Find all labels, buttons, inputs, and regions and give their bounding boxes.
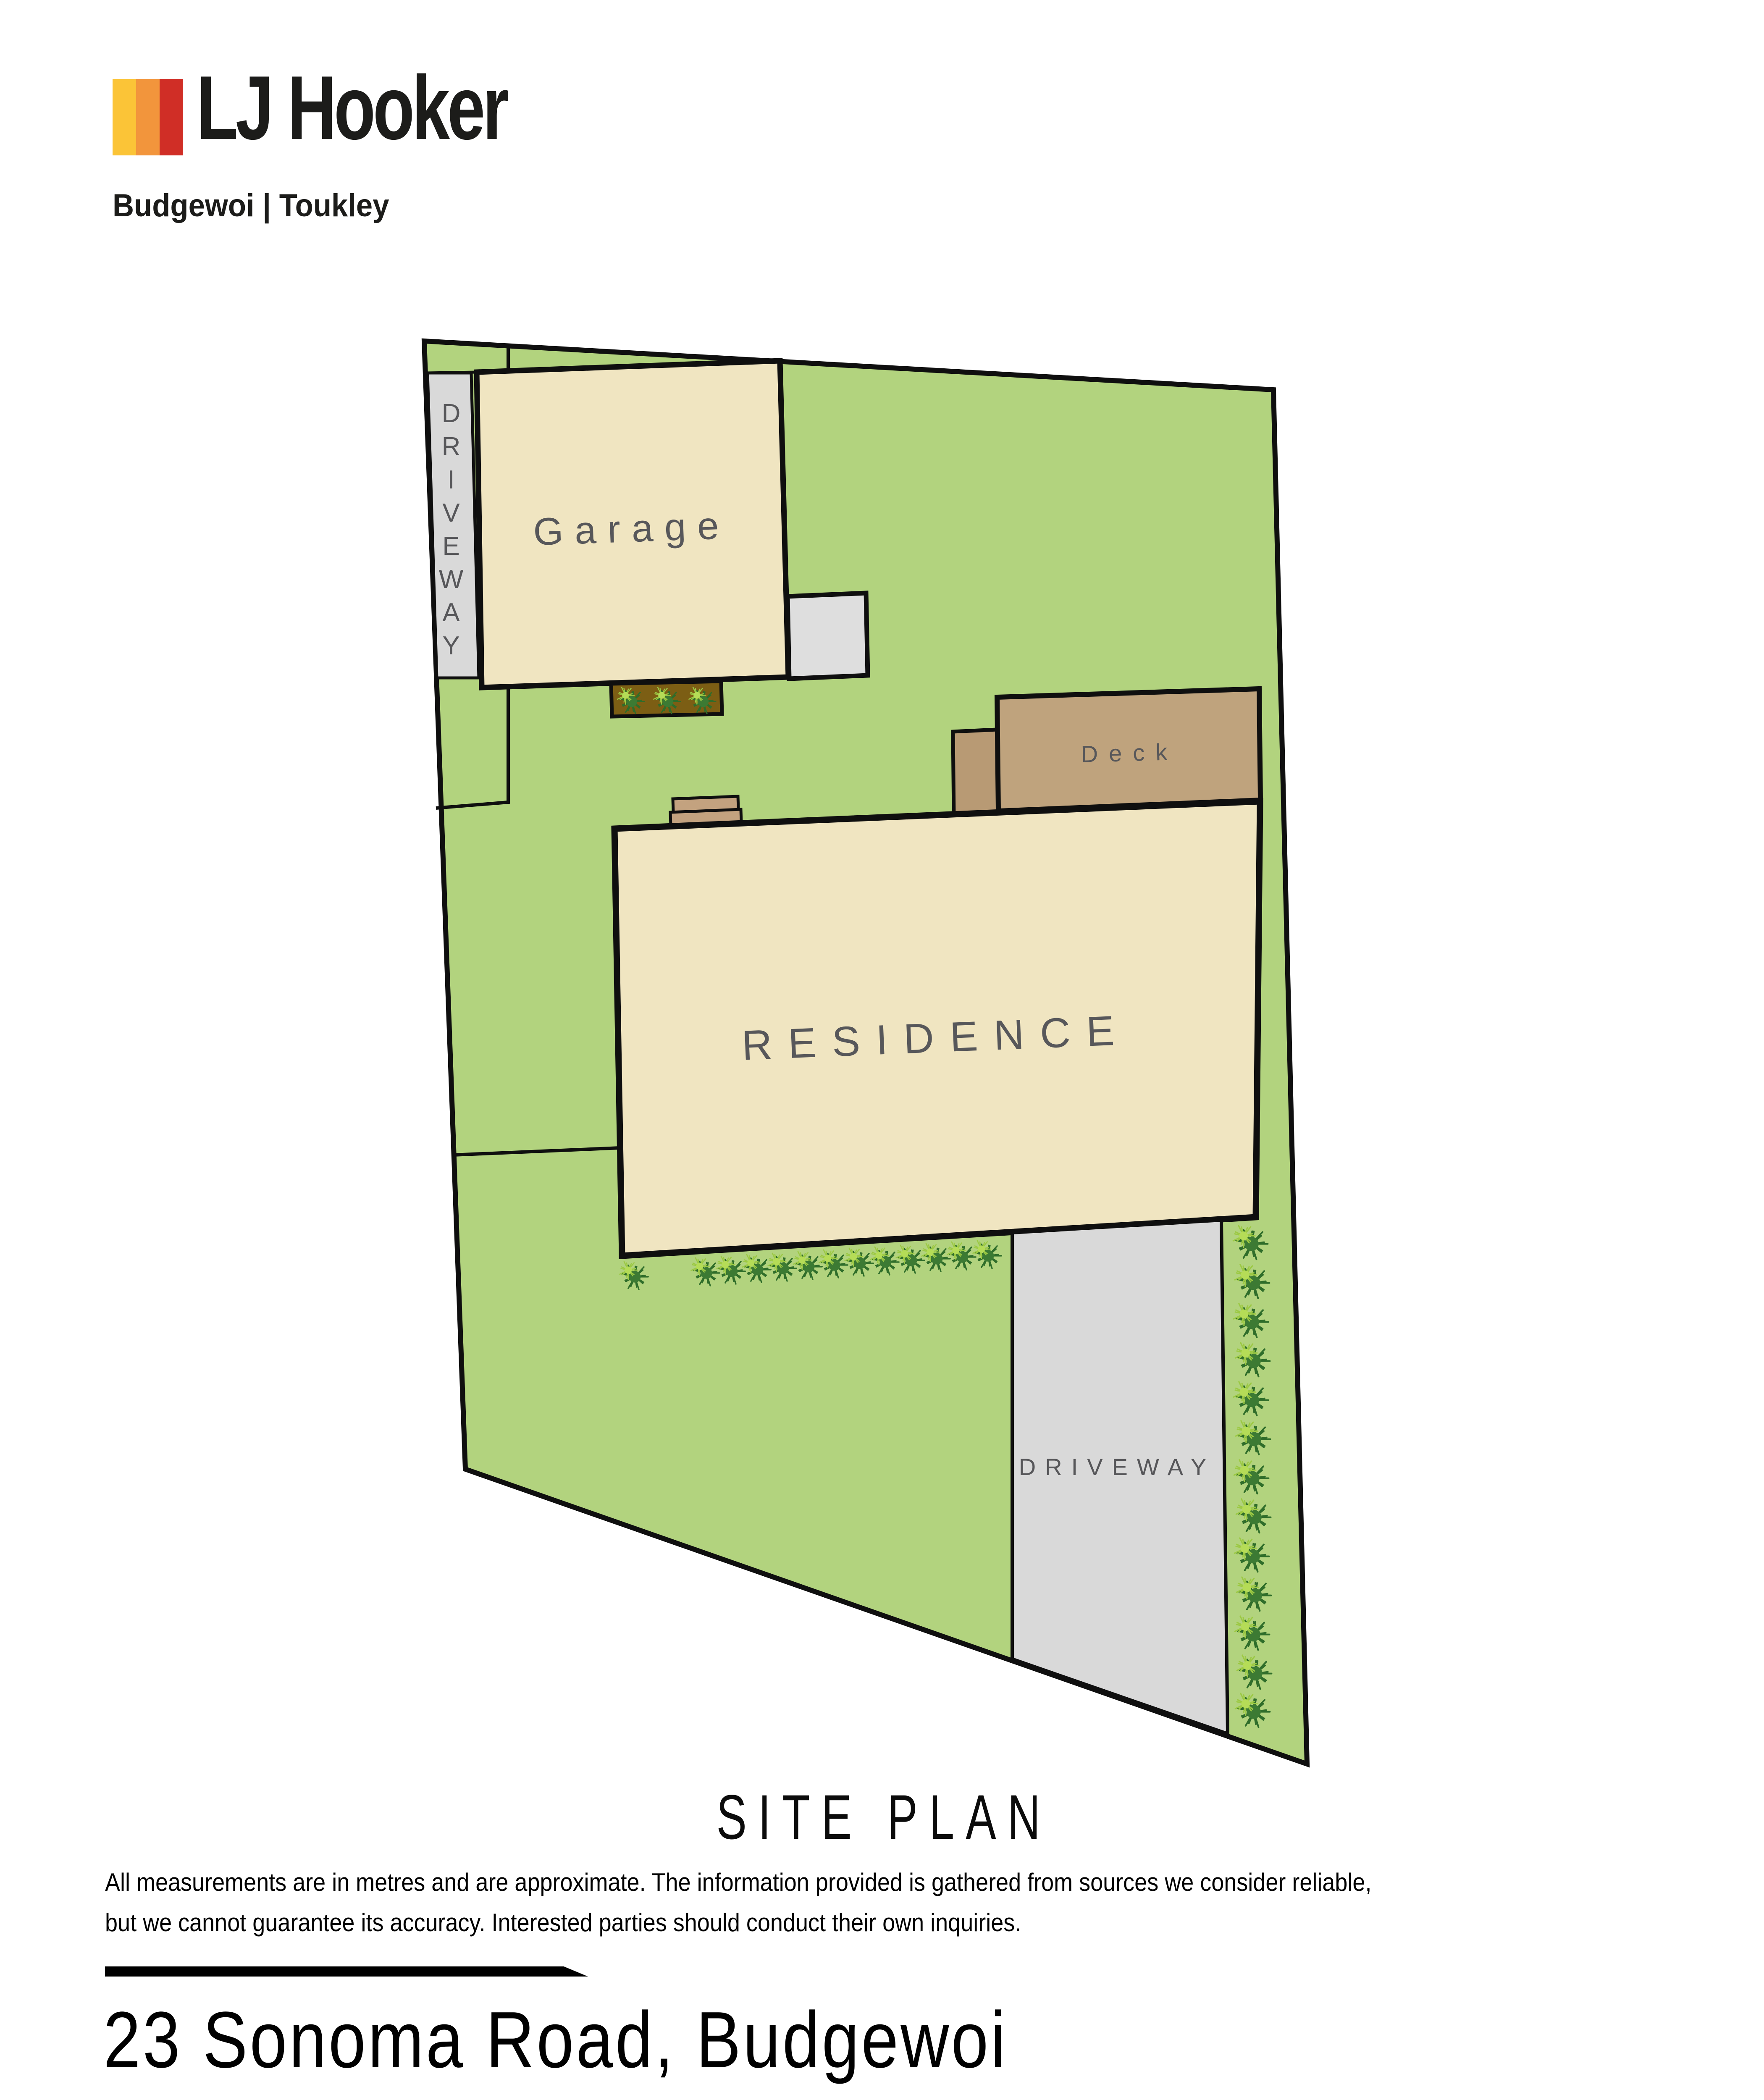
property-address: 23 Sonoma Road, Budgewoi: [103, 2000, 1008, 2080]
site-plan-title: SITE PLAN: [717, 1782, 1052, 1853]
disclaimer-line-1: All measurements are in metres and are a…: [105, 1870, 1504, 1895]
deck-side-strip: [953, 730, 998, 817]
patio-pad: [787, 593, 868, 679]
deck-label: Deck: [1081, 738, 1179, 767]
site-plan-drawing: DRIVEWAY Garage Deck RESIDENCE DRIVEWAY: [0, 0, 1764, 1869]
disclaimer-line-2: but we cannot guarantee its accuracy. In…: [105, 1910, 1504, 1935]
driveway-bottom-label: DRIVEWAY: [1019, 1454, 1215, 1480]
divider-bar: [105, 1966, 588, 1977]
garage-label: Garage: [533, 504, 731, 554]
